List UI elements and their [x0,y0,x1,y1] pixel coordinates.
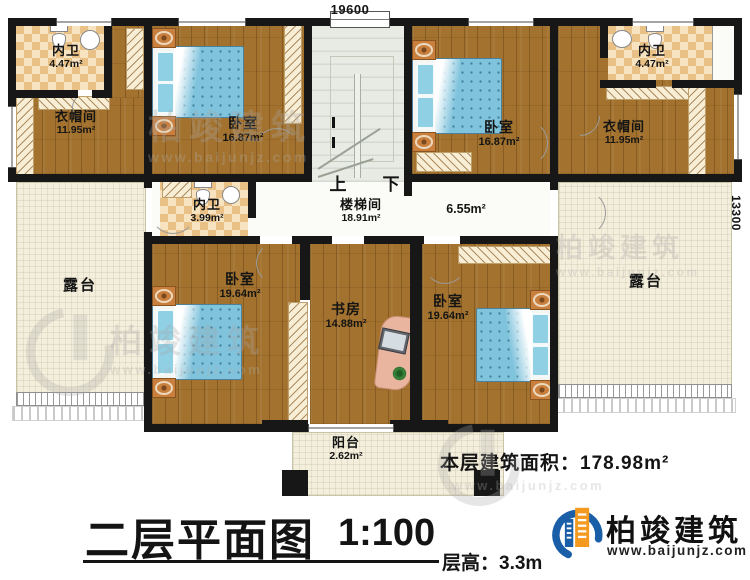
window [734,94,742,160]
window [632,18,694,26]
wall [410,244,422,424]
wall [300,244,310,300]
floor-area-value: 178.98m² [580,453,669,474]
wall [600,80,656,88]
stair-down-label: 下 [383,170,400,195]
wall [144,18,152,188]
door-arc [560,190,606,236]
wardrobe [288,302,308,424]
sink-icon [80,30,100,50]
wall [404,174,558,182]
door-arc [150,188,196,234]
wall [404,18,412,196]
balcony-pillar [282,470,308,496]
wall [248,174,256,218]
door-arc [424,242,466,284]
title-underline [83,560,439,563]
wardrobe [458,246,552,264]
bed-icon [152,304,242,380]
room-label-bedroom-top-left: 卧室16.87m² [223,116,264,144]
wall [144,232,152,432]
wall [600,18,608,58]
room-label-bath-mid: 内卫3.99m² [190,198,223,224]
room-label-cloak-top-left: 衣帽间11.95m² [55,110,97,136]
floor-height: 层高：3.3m [442,548,542,575]
nightstand [412,40,436,60]
wall [672,80,742,88]
wall [104,18,112,94]
nightstand [152,28,176,48]
wall [144,236,260,244]
dimension-top: 19600 [310,2,390,17]
window [56,18,112,26]
terrace-right-eave [554,398,736,413]
plan-scale: 1:100 [338,512,435,555]
room-label-bedroom-top-right: 卧室16.87m² [479,120,520,148]
wall [460,236,558,244]
brand-url: www.baijunjz.com [607,543,748,558]
bed-icon [476,308,554,382]
wall [8,174,148,182]
floor-area-total: 本层建筑面积：178.98m² [440,448,669,475]
balcony-door-threshold [308,424,394,432]
bath-top-right-side [712,26,735,80]
room-label-bath-top-right: 内卫4.47m² [635,44,668,70]
wall [8,90,78,98]
wardrobe [688,86,706,176]
room-label-bedroom-bottom-right: 卧室19.64m² [428,294,469,322]
wardrobe [126,28,144,90]
stair-arrow-tick [332,117,335,128]
terrace-left-railing [16,392,146,406]
sink-icon [612,30,632,48]
room-label-balcony: 阳台2.62m² [329,436,362,462]
brand-logo-icon [549,502,605,564]
dimension-right: 13300 [729,181,743,245]
room-label-terrace-right: 露台 [629,274,663,291]
wall [550,18,558,190]
plan-title: 二层平面图 [85,504,315,568]
wall [144,174,312,182]
wall [92,90,112,98]
nightstand [152,116,176,136]
wall [556,174,742,182]
wall [262,420,308,432]
room-label-terrace-left: 露台 [63,278,97,295]
room-label-cloak-top-right: 衣帽间11.95m² [603,120,645,146]
stair-landing [330,56,394,162]
nightstand [412,132,436,152]
window [468,18,534,26]
window [178,18,246,26]
terrace-left-eave [12,406,150,421]
room-label-bath-top-left: 内卫4.47m² [49,44,82,70]
floor-plan: 19600 13300 [0,0,750,580]
room-label-stairwell: 楼梯间18.91m² [340,198,382,224]
terrace-right-railing [558,384,732,398]
sink-icon [222,186,240,204]
plant-icon [392,366,407,381]
wardrobe [16,96,34,176]
wall [550,236,558,432]
room-label-corridor: 6.55m² [446,202,486,216]
wardrobe [416,152,472,172]
wardrobe [606,86,690,100]
window [8,106,16,168]
room-label-study: 书房14.88m² [326,302,367,330]
wardrobe [284,24,302,124]
stair-arrow-tick [332,137,335,148]
stair-up-label: 上 [330,170,347,195]
bed-icon [152,46,244,118]
wall [292,236,332,244]
wall [364,236,424,244]
floor-area-label: 本层建筑面积： [440,453,580,474]
nightstand [152,378,176,398]
wall [304,18,312,182]
nightstand [152,286,176,306]
room-label-bedroom-bottom-left: 卧室19.64m² [220,272,261,300]
door-arc [256,242,298,284]
